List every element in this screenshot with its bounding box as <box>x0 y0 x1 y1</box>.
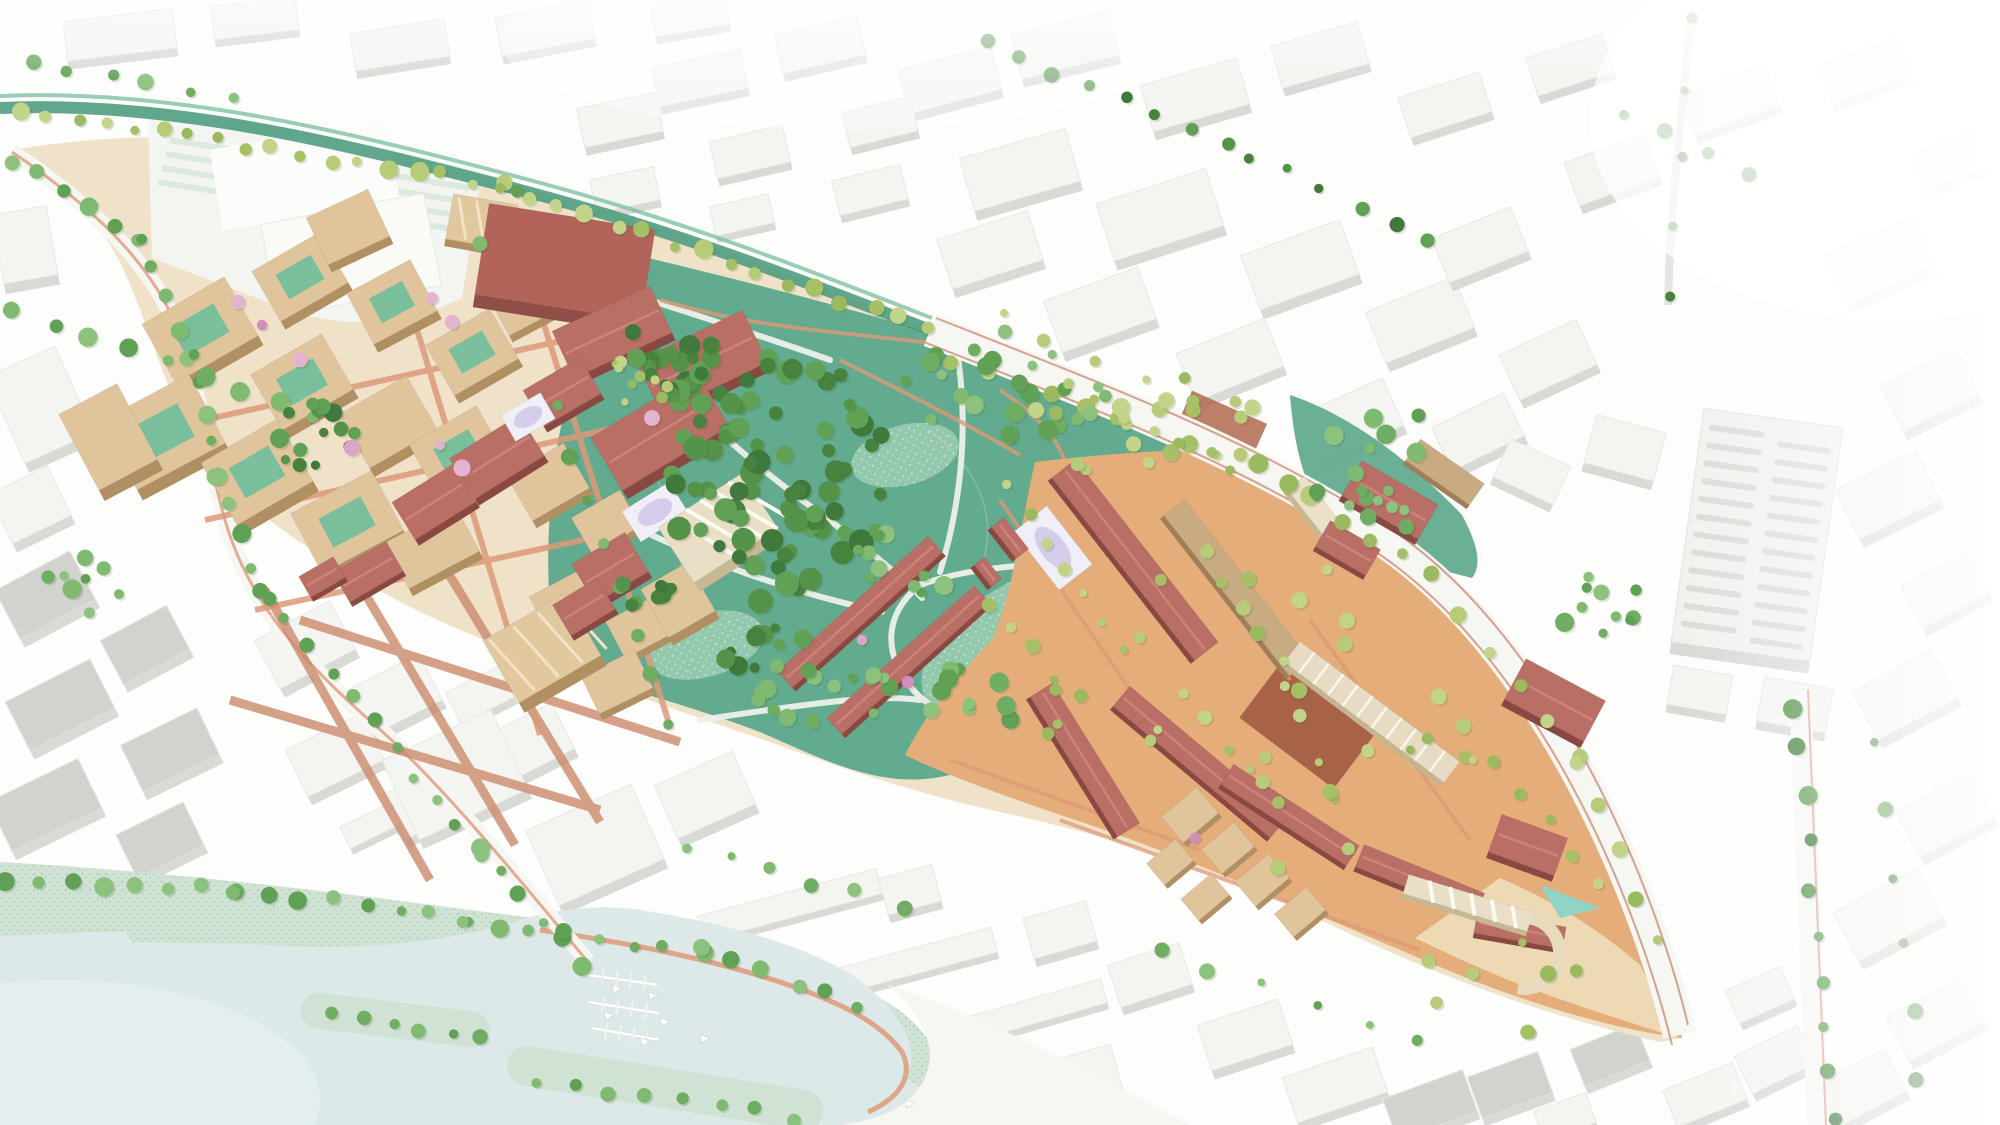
tree <box>1005 403 1025 423</box>
tree <box>693 415 707 429</box>
tree <box>1514 788 1527 801</box>
tree <box>1628 891 1644 907</box>
tree <box>919 570 930 581</box>
tree <box>1119 646 1127 654</box>
tree <box>1680 87 1688 95</box>
tree <box>1154 725 1163 734</box>
tree <box>900 375 911 386</box>
tree <box>1783 699 1803 719</box>
tree <box>189 349 200 360</box>
tree <box>775 571 799 595</box>
tree <box>774 639 785 650</box>
tree <box>102 117 113 128</box>
tree <box>473 236 488 251</box>
tree <box>209 467 227 485</box>
tree <box>817 421 834 438</box>
tree <box>1291 682 1307 698</box>
tree <box>838 462 853 477</box>
tree <box>59 571 68 580</box>
tree <box>549 199 561 211</box>
tree <box>240 143 252 155</box>
tree <box>1143 457 1155 469</box>
tree <box>32 876 44 888</box>
tree <box>613 221 627 235</box>
tree <box>1224 745 1234 755</box>
tree <box>108 219 123 234</box>
tree <box>522 925 534 937</box>
tree <box>1313 1001 1322 1010</box>
tree <box>1456 718 1472 734</box>
tree <box>1364 409 1383 428</box>
tree <box>1186 403 1201 418</box>
tree <box>326 890 340 904</box>
tree <box>511 185 524 198</box>
tree <box>1348 465 1364 481</box>
tree <box>144 260 156 272</box>
tree <box>869 708 879 718</box>
tree <box>831 295 847 311</box>
tree <box>230 382 249 401</box>
tree <box>198 406 216 424</box>
tree <box>1084 80 1095 91</box>
tree <box>325 1007 338 1020</box>
tree <box>433 165 446 178</box>
tree <box>5 155 20 170</box>
tree <box>998 325 1012 339</box>
tree <box>732 528 756 552</box>
tree <box>344 440 360 456</box>
tree <box>1002 480 1011 489</box>
tree <box>1099 390 1112 403</box>
tree <box>357 1011 372 1026</box>
tree <box>1154 942 1169 957</box>
tree <box>1363 534 1377 548</box>
tree <box>1469 756 1477 764</box>
tree <box>1049 406 1063 420</box>
tree <box>760 358 776 374</box>
tree <box>782 279 795 292</box>
tree <box>716 649 735 668</box>
tree <box>1344 500 1355 511</box>
tree <box>1279 474 1298 493</box>
tree <box>1053 719 1063 729</box>
tree <box>126 877 142 893</box>
tree <box>293 443 307 457</box>
tree <box>1236 600 1251 615</box>
tree <box>1484 647 1496 659</box>
tree <box>981 34 995 48</box>
tree <box>194 878 209 893</box>
tree <box>1293 709 1307 723</box>
tree <box>1190 833 1201 844</box>
tree <box>848 673 858 683</box>
tree <box>825 502 843 520</box>
tree <box>1386 501 1398 513</box>
tree <box>561 448 578 465</box>
tree <box>642 666 658 682</box>
tree <box>426 292 438 304</box>
tree <box>422 905 435 918</box>
tree <box>932 681 951 700</box>
tree <box>693 939 710 956</box>
tree <box>1126 436 1141 451</box>
tree <box>81 574 91 584</box>
tree <box>817 983 832 998</box>
tree <box>1225 465 1235 475</box>
tree <box>782 359 802 379</box>
tree <box>769 406 783 420</box>
tree <box>1280 681 1290 691</box>
tree <box>229 93 239 103</box>
tree <box>1805 833 1818 846</box>
tree <box>114 589 124 599</box>
tree <box>283 407 295 419</box>
tree <box>1356 202 1370 216</box>
tree <box>1199 963 1215 979</box>
tree <box>1702 147 1714 159</box>
tree <box>729 418 749 438</box>
tree <box>293 353 308 368</box>
tree <box>1234 448 1248 462</box>
tree <box>921 353 940 372</box>
tree <box>1686 13 1697 24</box>
tree <box>392 742 403 753</box>
tree <box>1038 420 1057 439</box>
tree <box>257 320 267 330</box>
tree <box>779 709 796 726</box>
tree <box>1079 589 1087 597</box>
tree <box>1546 814 1556 824</box>
tree <box>758 679 777 698</box>
tree <box>1246 765 1254 773</box>
tree <box>12 102 30 120</box>
tree <box>1801 883 1816 898</box>
tree <box>1037 334 1051 348</box>
tree <box>688 482 704 498</box>
tree <box>159 288 173 302</box>
tree <box>65 873 81 889</box>
tree <box>1006 622 1016 632</box>
tree <box>784 487 800 503</box>
tree <box>1907 1003 1923 1019</box>
tree <box>1074 689 1087 702</box>
tree <box>1283 164 1292 173</box>
tree <box>539 918 548 927</box>
tree <box>997 696 1016 715</box>
tree <box>1337 636 1353 652</box>
tree <box>1820 1063 1835 1078</box>
tree <box>1321 564 1332 575</box>
tree <box>828 680 841 693</box>
tree <box>1042 727 1055 740</box>
tree <box>720 393 741 414</box>
tree <box>1908 1072 1924 1088</box>
tree <box>472 1029 487 1044</box>
tree <box>137 74 153 90</box>
tree <box>474 848 489 863</box>
tree <box>328 668 339 679</box>
tree <box>1200 544 1214 558</box>
tree <box>3 302 20 319</box>
tree <box>747 1101 761 1115</box>
tree <box>656 940 668 952</box>
tree <box>794 629 812 647</box>
tree <box>691 394 711 414</box>
tree <box>94 877 113 896</box>
tree <box>1315 758 1323 766</box>
tree <box>1048 350 1057 359</box>
tree <box>1398 519 1413 534</box>
tree <box>232 524 251 543</box>
tree <box>1412 1035 1423 1046</box>
tree <box>1389 217 1404 232</box>
tree <box>726 259 737 270</box>
tree <box>857 635 867 645</box>
tree <box>818 481 840 503</box>
tree <box>1314 184 1323 193</box>
tree <box>119 338 138 357</box>
tree <box>1653 935 1663 945</box>
tree <box>1342 842 1355 855</box>
tree <box>410 162 429 181</box>
tree <box>634 371 645 382</box>
tree <box>1466 967 1479 980</box>
tree <box>1234 411 1247 424</box>
tree <box>1741 167 1756 182</box>
tree <box>730 482 748 500</box>
tree <box>1256 775 1270 789</box>
tree <box>1411 408 1425 422</box>
tree <box>1818 1022 1828 1032</box>
tree <box>768 704 780 716</box>
tree <box>1121 92 1132 103</box>
tree <box>570 1079 582 1091</box>
tree <box>397 906 407 916</box>
tree <box>411 1024 426 1039</box>
tree <box>281 455 290 464</box>
masterplan-canvas <box>0 0 2000 1125</box>
tree <box>732 550 747 565</box>
tree <box>389 1019 399 1029</box>
tree <box>666 474 686 494</box>
tree <box>361 899 375 913</box>
tree <box>693 522 708 537</box>
tree <box>677 1092 689 1104</box>
tree <box>206 436 216 446</box>
tree <box>1555 613 1574 632</box>
tree <box>614 363 623 372</box>
context-building <box>1666 665 1733 723</box>
tree <box>749 663 759 673</box>
tree <box>1145 735 1157 747</box>
tree <box>495 183 505 193</box>
tree <box>728 852 736 860</box>
tree <box>1612 841 1628 857</box>
tree <box>1011 374 1028 391</box>
tree <box>1259 751 1272 764</box>
tree <box>1322 784 1338 800</box>
tree <box>1334 514 1350 530</box>
tree <box>1222 137 1235 150</box>
tree <box>1540 714 1554 728</box>
tree <box>982 598 996 612</box>
tree <box>873 529 885 541</box>
tree <box>1149 426 1159 436</box>
tree <box>793 980 807 994</box>
tree <box>50 319 64 333</box>
tree <box>311 460 320 469</box>
tree <box>1257 978 1265 986</box>
tree <box>1430 996 1443 1009</box>
tree <box>41 570 54 583</box>
tree <box>1050 675 1058 683</box>
tree <box>319 428 328 437</box>
tree <box>926 414 937 425</box>
tree <box>409 774 419 784</box>
tree <box>278 613 289 624</box>
tree <box>186 88 196 98</box>
tree <box>1093 382 1103 392</box>
tree <box>1423 566 1439 582</box>
tree <box>1899 938 1909 948</box>
tree <box>1149 109 1160 120</box>
tree <box>432 795 442 805</box>
tree <box>1241 571 1257 587</box>
tree <box>804 878 819 893</box>
tree <box>130 126 139 135</box>
tree <box>453 459 470 476</box>
tree <box>1598 629 1607 638</box>
tree <box>637 1088 652 1103</box>
tree <box>294 151 305 162</box>
tree <box>1244 154 1254 164</box>
tree <box>922 321 935 334</box>
tree <box>1420 233 1434 247</box>
tree <box>491 919 509 937</box>
tree <box>1514 679 1527 692</box>
tree <box>822 444 835 457</box>
tree <box>1025 638 1040 653</box>
tree <box>1360 509 1377 526</box>
tree <box>80 198 99 217</box>
tree <box>1279 656 1288 665</box>
tree <box>293 458 307 472</box>
tree <box>1376 425 1395 444</box>
tree <box>245 563 256 574</box>
tree <box>627 379 636 388</box>
tree <box>1230 396 1242 408</box>
tree <box>977 357 995 375</box>
tree <box>631 629 644 642</box>
tree <box>663 719 673 729</box>
tree <box>600 1087 615 1102</box>
tree <box>713 540 725 552</box>
tree <box>1356 485 1367 496</box>
tree <box>937 370 947 380</box>
tree <box>704 487 717 500</box>
tree <box>1179 689 1189 699</box>
tree <box>1814 932 1824 942</box>
tree <box>108 70 119 81</box>
tree <box>865 667 881 683</box>
tree <box>352 157 362 167</box>
tree <box>552 400 563 411</box>
tree <box>732 510 749 527</box>
tree <box>532 1078 542 1088</box>
tree <box>1082 405 1097 420</box>
tree <box>664 346 679 361</box>
tree <box>1089 395 1098 404</box>
tree <box>1788 738 1806 756</box>
tree <box>346 689 360 703</box>
tree <box>1028 402 1044 418</box>
tree <box>1518 938 1526 946</box>
tree <box>62 579 81 598</box>
tree <box>231 295 245 309</box>
tree <box>449 1029 458 1038</box>
tree <box>806 505 824 523</box>
tree <box>445 315 459 329</box>
tree <box>61 66 72 77</box>
tree <box>1878 802 1894 818</box>
tree <box>1250 625 1266 641</box>
tree <box>702 336 719 353</box>
tree <box>1799 786 1818 805</box>
tree <box>196 367 215 386</box>
tree <box>847 883 861 897</box>
tree <box>1591 798 1606 813</box>
tree <box>171 322 189 340</box>
tree <box>368 712 383 727</box>
tree <box>650 375 659 384</box>
tree <box>262 139 277 154</box>
tree <box>582 496 591 505</box>
tree <box>162 883 174 895</box>
tree <box>684 436 708 460</box>
tree <box>182 128 193 139</box>
tree <box>222 497 236 511</box>
tree <box>740 373 755 388</box>
tree <box>776 446 794 464</box>
tree <box>670 242 680 252</box>
tree <box>633 221 649 237</box>
tree <box>573 957 592 976</box>
tree <box>1044 67 1060 83</box>
tree <box>695 367 709 381</box>
tree <box>1422 733 1434 745</box>
tree <box>1566 850 1579 863</box>
tree <box>1291 592 1307 608</box>
tree <box>644 410 660 426</box>
tree <box>77 550 93 566</box>
tree <box>1668 222 1678 232</box>
tree <box>874 488 887 501</box>
tree <box>1450 606 1467 623</box>
tree <box>799 568 822 591</box>
tree <box>136 234 147 245</box>
tree <box>897 901 913 917</box>
tree <box>1619 110 1629 120</box>
tree <box>869 300 884 315</box>
tree <box>853 545 863 555</box>
tree <box>288 891 307 910</box>
tree <box>1206 447 1217 458</box>
tree <box>1058 563 1072 577</box>
tree <box>1399 505 1409 515</box>
tree <box>1870 738 1879 747</box>
tree <box>1339 613 1355 629</box>
tree <box>1630 584 1641 595</box>
